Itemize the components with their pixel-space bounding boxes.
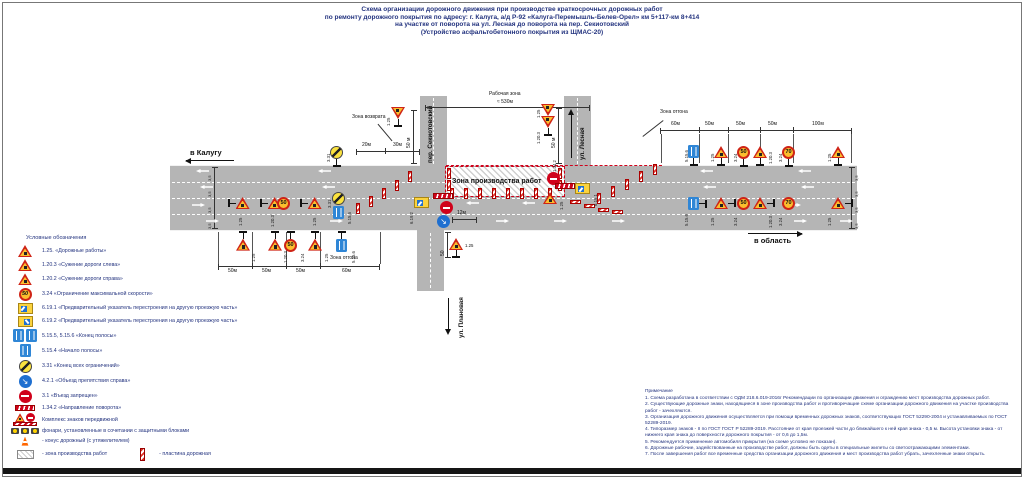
sign-base <box>705 200 707 208</box>
legend-item-label: 5.15.5, 5.15.6 «Конец полосы» <box>42 333 116 339</box>
sign-speed-limit: 50 <box>737 197 750 210</box>
sign-code: 3.31 <box>327 200 332 208</box>
sign-post <box>290 233 291 239</box>
sign-code: 1.25 <box>386 118 391 126</box>
sign-roadworks-icon <box>831 146 845 158</box>
legend-item-label: 1.20.2 «Сужение дороги справа» <box>42 276 123 282</box>
sign-code: 1.25 <box>312 218 317 226</box>
lane-width: 3,5 <box>207 175 212 181</box>
road-plate-icon <box>447 180 451 191</box>
sign-base <box>394 125 402 127</box>
note-line: 3. Организация дорожного движения осущес… <box>645 415 1017 427</box>
sign-no-entry-icon <box>12 390 38 403</box>
sign-speed-limit-icon: 50 <box>19 288 32 301</box>
sign-code: 3.24 <box>778 154 783 162</box>
work-zone-hatch-icon <box>12 450 38 459</box>
taper-zone-label-right: Зона отгона <box>660 109 688 115</box>
work-area-label: Рабочая зона <box>489 91 521 97</box>
sign-code: 6.19.1 <box>593 194 598 206</box>
dim-tick <box>385 148 386 154</box>
sign-code: 1.25 <box>324 254 329 262</box>
road-plate-icon <box>534 188 538 199</box>
sign-speed-limit: 50 <box>277 197 290 210</box>
sign-roadworks-icon <box>714 146 728 158</box>
sign-roadworks-icon <box>236 197 250 209</box>
dim-tick <box>699 127 700 133</box>
dim-50m-planovaya <box>447 232 448 258</box>
road-plate-icon <box>395 180 399 191</box>
extension-line <box>380 232 381 264</box>
note-line: 7. После завершения работ все временные … <box>645 452 1017 458</box>
road-plate-icon <box>140 448 145 461</box>
left-direction-arrow <box>186 160 234 161</box>
sign-turn-direction-icon <box>555 183 575 189</box>
road-plate-icon <box>129 448 155 461</box>
sign-base <box>740 165 748 167</box>
legend-item: фонари, установленные в сочетании с защи… <box>12 428 262 434</box>
return-zone-label: Зона возврата <box>352 114 385 120</box>
sign-roadworks-icon <box>714 197 728 209</box>
sign-code: 1.20.3 <box>270 215 275 227</box>
note-line: 4. Типоразмер знаков - II по ГОСТ ГОСТ Р… <box>645 427 1017 439</box>
sign-narrowing-left-icon <box>18 259 32 271</box>
sign-lane-change-2-icon <box>18 316 33 327</box>
legend-item: Комплекс знаков передвижной <box>12 413 262 426</box>
sign-end-restrictions-icon <box>12 360 38 373</box>
sign-lane-change-2-icon <box>12 316 38 327</box>
sign-post <box>230 203 236 204</box>
work-area-dimension <box>425 107 590 108</box>
sign-lane-end <box>688 145 699 166</box>
sign-speed-limit-icon: 50 <box>284 239 297 252</box>
legend-item: 1.20.3 «Сужение дороги слева» <box>12 259 262 271</box>
sign-roadworks <box>449 238 463 258</box>
title-line-3: на участке от поворота на ул. Лесная до … <box>0 21 1024 29</box>
sign-code: 1.25 <box>710 218 715 226</box>
legend-item-label: 3.31 «Конец всех ограничений» <box>42 363 120 369</box>
sign-roadworks <box>831 146 845 166</box>
sign-lane-end-icon <box>688 145 699 158</box>
dim-50m-sekiotovsky <box>413 110 414 164</box>
title-line-1: Схема организации дорожного движения при… <box>0 6 1024 14</box>
mobile-sign-complex-icon <box>13 413 37 426</box>
legend-item: 1.34.2 «Направление поворота» <box>12 405 262 411</box>
lane-width: 3,5 <box>854 175 859 181</box>
road-plate-icon <box>639 171 643 182</box>
sign-code: 3.31 <box>326 154 331 162</box>
sign-base <box>333 165 341 167</box>
legend-item-label: 1.34.2 «Направление поворота» <box>42 405 121 411</box>
legend-item: 6.19.2 «Предварительный указатель перест… <box>12 316 262 327</box>
dim-tick <box>728 127 729 133</box>
traffic-cone-icon <box>12 437 38 446</box>
road-plate-icon <box>611 186 615 197</box>
sign-speed-limit-icon: 50 <box>12 288 38 301</box>
sign-detour-right-icon <box>437 215 450 228</box>
sign-end-restrictions <box>330 146 343 167</box>
notes-header: Примечание <box>645 389 1017 395</box>
sign-code: 1.20.3 <box>768 152 773 164</box>
right-dimension-chain <box>660 130 852 131</box>
legend-item: 6.19.1 «Предварительный указатель перест… <box>12 303 262 314</box>
legend-item: 4.2.1 «Объезд препятствия справа» <box>12 375 262 388</box>
legend: Условные обозначения 1.25. «Дорожные раб… <box>12 235 262 463</box>
sign-lane-end <box>336 231 347 252</box>
sign-speed-limit-icon: 70 <box>782 197 795 210</box>
road-plate-icon <box>506 188 510 199</box>
sign-roadworks-icon <box>308 197 322 209</box>
sign-speed-limit: 70 <box>782 197 795 210</box>
lane-width: 3,5 <box>207 223 212 229</box>
sign-code: 1.20.3 <box>768 216 773 228</box>
sign-code: 1.25 <box>465 243 473 248</box>
sign-speed-limit: 50 <box>284 231 297 252</box>
sign-narrowing-left-icon <box>753 146 767 158</box>
sign-lane-change-1-icon <box>12 303 38 314</box>
road-plate-icon <box>625 179 629 190</box>
road-plate-icon <box>492 188 496 199</box>
lane-width: 3,5 <box>854 223 859 229</box>
sign-post <box>341 233 342 239</box>
dim-50m: 50м <box>262 268 271 274</box>
street-centerline <box>430 233 431 288</box>
sign-roadworks-icon <box>449 238 463 250</box>
legend-item: - зона производства работ - пластина дор… <box>12 448 262 461</box>
sign-roadworks-icon <box>308 239 322 251</box>
sign-code: 3.24 <box>733 218 738 226</box>
sign-narrowing-left <box>268 231 282 251</box>
dim-tick <box>320 263 321 269</box>
sign-no-entry-icon <box>440 201 453 214</box>
sign-stack-lesnaya <box>541 104 555 136</box>
legend-item-label: 1.20.3 «Сужение дороги слева» <box>42 262 120 268</box>
sign-lane-end-icon <box>688 197 699 210</box>
legend-item-label: - зона производства работ <box>42 451 107 457</box>
note-line: 2. Существующие дорожные знаки, находящи… <box>645 402 1017 414</box>
sign-end-restrictions-icon <box>330 146 343 159</box>
dim-tick <box>760 127 761 133</box>
right-direction-arrow <box>748 233 802 234</box>
extension-line <box>728 134 729 163</box>
sign-code: 5.15.6 <box>684 214 689 226</box>
work-zone-label: Зона производства работ <box>452 178 541 185</box>
extension-line <box>699 134 700 163</box>
road-plate-icon <box>408 171 412 182</box>
sign-narrowing-left <box>753 197 775 209</box>
legend-item: 5.15.4 «Начало полосы» <box>12 344 262 357</box>
lane-width: 3,5 <box>207 191 212 197</box>
sign-lane-end-icon <box>26 329 37 342</box>
legend-item-label: - конус дорожный (с утяжелителем) <box>42 438 130 444</box>
sign-code: 1.25 <box>827 218 832 226</box>
sign-roadworks-icon <box>18 245 32 257</box>
sign-narrowing-left-icon <box>753 197 767 209</box>
sign-code: 5.15.6 <box>684 150 689 162</box>
sign-detour-right-icon <box>12 375 38 388</box>
sign-speed-limit-icon: 50 <box>277 197 290 210</box>
sign-post <box>262 203 268 204</box>
planovaya-direction-arrow <box>448 298 449 332</box>
legend-item-label: 4.2.1 «Объезд препятствия справа» <box>42 378 130 384</box>
sign-lane-end <box>688 197 707 210</box>
sign-code: 1.20.3 <box>283 251 288 263</box>
sign-no-entry-icon <box>19 390 32 403</box>
dim-50m: 50м <box>768 121 777 127</box>
road-plate-icon <box>464 188 468 199</box>
legend-item-label: Комплекс знаков передвижной <box>42 417 118 423</box>
sign-detour-right-icon <box>19 375 32 388</box>
sign-code: 1.25 <box>238 218 243 226</box>
dim-tick <box>286 263 287 269</box>
sign-code: 1.25 <box>710 154 715 162</box>
mobile-base <box>13 422 37 426</box>
sign-lane-change-1-icon <box>575 183 590 194</box>
sign-narrowing-left-icon <box>541 116 555 128</box>
sign-end-restrictions-icon <box>19 360 32 373</box>
road-plate-icon <box>570 200 581 204</box>
sign-base <box>452 256 460 258</box>
road-plate-icon <box>612 210 623 214</box>
street-label-lesnaya: ул. Лесная <box>579 127 586 160</box>
sign-narrowing-left-icon <box>12 259 38 271</box>
sign-base <box>851 199 853 207</box>
legend-item-label: 6.19.1 «Предварительный указатель перест… <box>42 305 237 311</box>
road-plate-icon <box>598 208 609 212</box>
sign-base <box>717 164 725 166</box>
dim-12m-label: 12м <box>457 210 466 216</box>
sign-roadworks-icon <box>12 245 38 257</box>
sign-roadworks <box>714 146 728 166</box>
sign-speed-limit: 70 <box>782 146 795 167</box>
legend-item: 3.1 «Въезд запрещен» <box>12 390 262 403</box>
legend-item-label: - пластина дорожная <box>159 451 211 457</box>
road-plate-icon <box>447 168 451 179</box>
dim-20m: 20м <box>362 142 371 148</box>
sign-speed-limit: 50 <box>737 146 750 167</box>
work-zone-hatch-icon <box>17 450 34 459</box>
traffic-cone-icon <box>21 437 30 446</box>
dim-50m: 50м <box>296 268 305 274</box>
sign-base <box>544 134 552 136</box>
return-zone-dimension <box>356 151 420 152</box>
lesnaya-direction-arrow <box>571 112 572 158</box>
legend-item-label: 3.1 «Въезд запрещен» <box>42 393 98 399</box>
sign-code: 1.25 <box>559 202 564 210</box>
sign-roadworks-icon <box>391 107 405 119</box>
sign-code: 6.19.2 <box>409 212 414 224</box>
sign-post <box>302 203 308 204</box>
road-plate-icon <box>369 196 373 207</box>
sign-base <box>734 199 736 207</box>
sign-base <box>756 164 764 166</box>
road-plate-icon <box>520 188 524 199</box>
direction-to-kaluga: в Калугу <box>190 148 222 157</box>
legend-item-label: 6.19.2 «Предварительный указатель перест… <box>42 318 237 324</box>
sign-narrowing-right-icon <box>18 273 32 285</box>
sign-post <box>315 233 316 239</box>
sign-narrowing-right-icon <box>12 273 38 285</box>
sheet-bottom-border <box>3 468 1021 474</box>
sign-base <box>690 164 698 166</box>
sign-roadworks <box>714 197 736 209</box>
street-label-sekiotovsky: пер. Секиотовский <box>427 106 434 163</box>
dim-50-label: 50 <box>440 250 446 256</box>
title-line-4: (Устройство асфальтобетонного покрытия и… <box>0 29 1024 37</box>
sign-lane-end-icon <box>336 239 347 252</box>
legend-item: 3.31 «Конец всех ограничений» <box>12 360 262 373</box>
sign-code: 5.15.6 <box>347 212 352 224</box>
dim-50m-label: 50 м <box>551 138 557 148</box>
sign-roadworks-icon <box>15 413 25 422</box>
sign-base <box>785 165 793 167</box>
dim-50m-lesnaya <box>558 108 559 164</box>
dim-12m <box>452 219 477 220</box>
legend-item: - конус дорожный (с утяжелителем) <box>12 437 262 446</box>
road-plate-icon <box>478 188 482 199</box>
sign-narrowing-left-icon <box>268 239 282 251</box>
road-plate-icon <box>382 188 386 199</box>
notes-block: Примечание 1. Схема разработана в соотве… <box>645 389 1017 458</box>
mobile-sign-complex-icon <box>12 413 38 426</box>
legend-item-label: 5.15.4 «Начало полосы» <box>42 348 102 354</box>
sign-turn-direction-icon <box>433 193 453 199</box>
sign-code: 3.24 <box>733 154 738 162</box>
sign-roadworks-icon <box>541 104 555 116</box>
page-title: Схема организации дорожного движения при… <box>0 6 1024 36</box>
sign-code: 1.25 <box>536 110 541 118</box>
legend-item: 1.20.2 «Сужение дороги справа» <box>12 273 262 285</box>
dim-30m: 30м <box>393 142 402 148</box>
legend-item: 1.25. «Дорожные работы» <box>12 245 262 257</box>
sign-base <box>773 199 775 207</box>
extension-line <box>851 134 852 163</box>
legend-item-label: 3.24 «Ограничение максимальной скорости» <box>42 291 153 297</box>
work-area-length: ≈ 530м <box>497 99 513 105</box>
dim-tick <box>793 127 794 133</box>
warning-lamp-icon <box>21 428 29 434</box>
sign-lane-start-icon <box>20 344 31 357</box>
lane-width: 3,5 <box>854 207 859 213</box>
sign-no-entry-icon <box>26 413 35 422</box>
legend-item-label: 1.25. «Дорожные работы» <box>42 248 106 254</box>
sign-turn-direction-icon <box>12 405 38 411</box>
sign-lane-change-1-icon <box>18 303 33 314</box>
sign-code: 3.24 <box>300 254 305 262</box>
dim-50m-label: 50 м <box>406 138 412 148</box>
sign-code: 1.34.2 <box>552 160 557 172</box>
sign-lane-start-icon <box>12 344 38 357</box>
sign-code: 3.24 <box>778 218 783 226</box>
sign-code: 1.25 <box>827 154 832 162</box>
warning-lamp-icon <box>31 428 39 434</box>
dim-60m: 60м <box>342 268 351 274</box>
sign-lane-end-icon <box>333 206 344 219</box>
legend-item: 5.15.5, 5.15.6 «Конец полосы» <box>12 329 262 342</box>
sign-post <box>275 233 276 239</box>
dim-50m: 50м <box>705 121 714 127</box>
legend-item: 503.24 «Ограничение максимальной скорост… <box>12 288 262 301</box>
extension-line <box>661 134 662 163</box>
dim-60m: 60м <box>671 121 680 127</box>
sign-roadworks <box>308 231 322 251</box>
scheme-sheet: Схема организации дорожного движения при… <box>0 0 1024 479</box>
sign-lane-end-icon <box>12 329 38 342</box>
sign-roadworks <box>831 197 853 209</box>
warning-lamp-icon <box>11 428 19 434</box>
sign-code: 5.15.6 <box>351 251 356 263</box>
road-plate-icon <box>653 164 657 175</box>
sign-roadworks <box>391 107 405 127</box>
road-plate-icon <box>356 203 360 214</box>
sign-roadworks <box>300 197 322 209</box>
sign-speed-limit-icon: 50 <box>737 197 750 210</box>
dim-100m: 100м <box>812 121 824 127</box>
direction-to-oblast: в область <box>754 236 791 245</box>
sign-speed-limit-icon: 50 <box>737 146 750 159</box>
sign-lane-end-icon <box>13 329 24 342</box>
sign-roadworks <box>228 197 250 209</box>
sign-lane-change-2-icon <box>414 197 429 208</box>
sign-narrowing-left <box>753 146 767 166</box>
dim-50m: 50м <box>736 121 745 127</box>
sign-code: 1.20.3 <box>536 132 541 144</box>
legend-header: Условные обозначения <box>26 235 262 241</box>
sign-turn-direction-icon <box>15 405 35 411</box>
street-label-planovaya: ул. Плановая <box>458 297 465 338</box>
legend-item-label: фонари, установленные в сочетании с защи… <box>42 428 189 434</box>
sign-roadworks-icon <box>831 197 845 209</box>
sign-speed-limit-icon: 70 <box>782 146 795 159</box>
lane-width: 3,5 <box>207 207 212 213</box>
lane-width: 3,5 <box>854 191 859 197</box>
warning-lamps-icon <box>12 428 38 434</box>
sign-end-restrictions-icon <box>332 192 345 205</box>
sign-base <box>834 164 842 166</box>
